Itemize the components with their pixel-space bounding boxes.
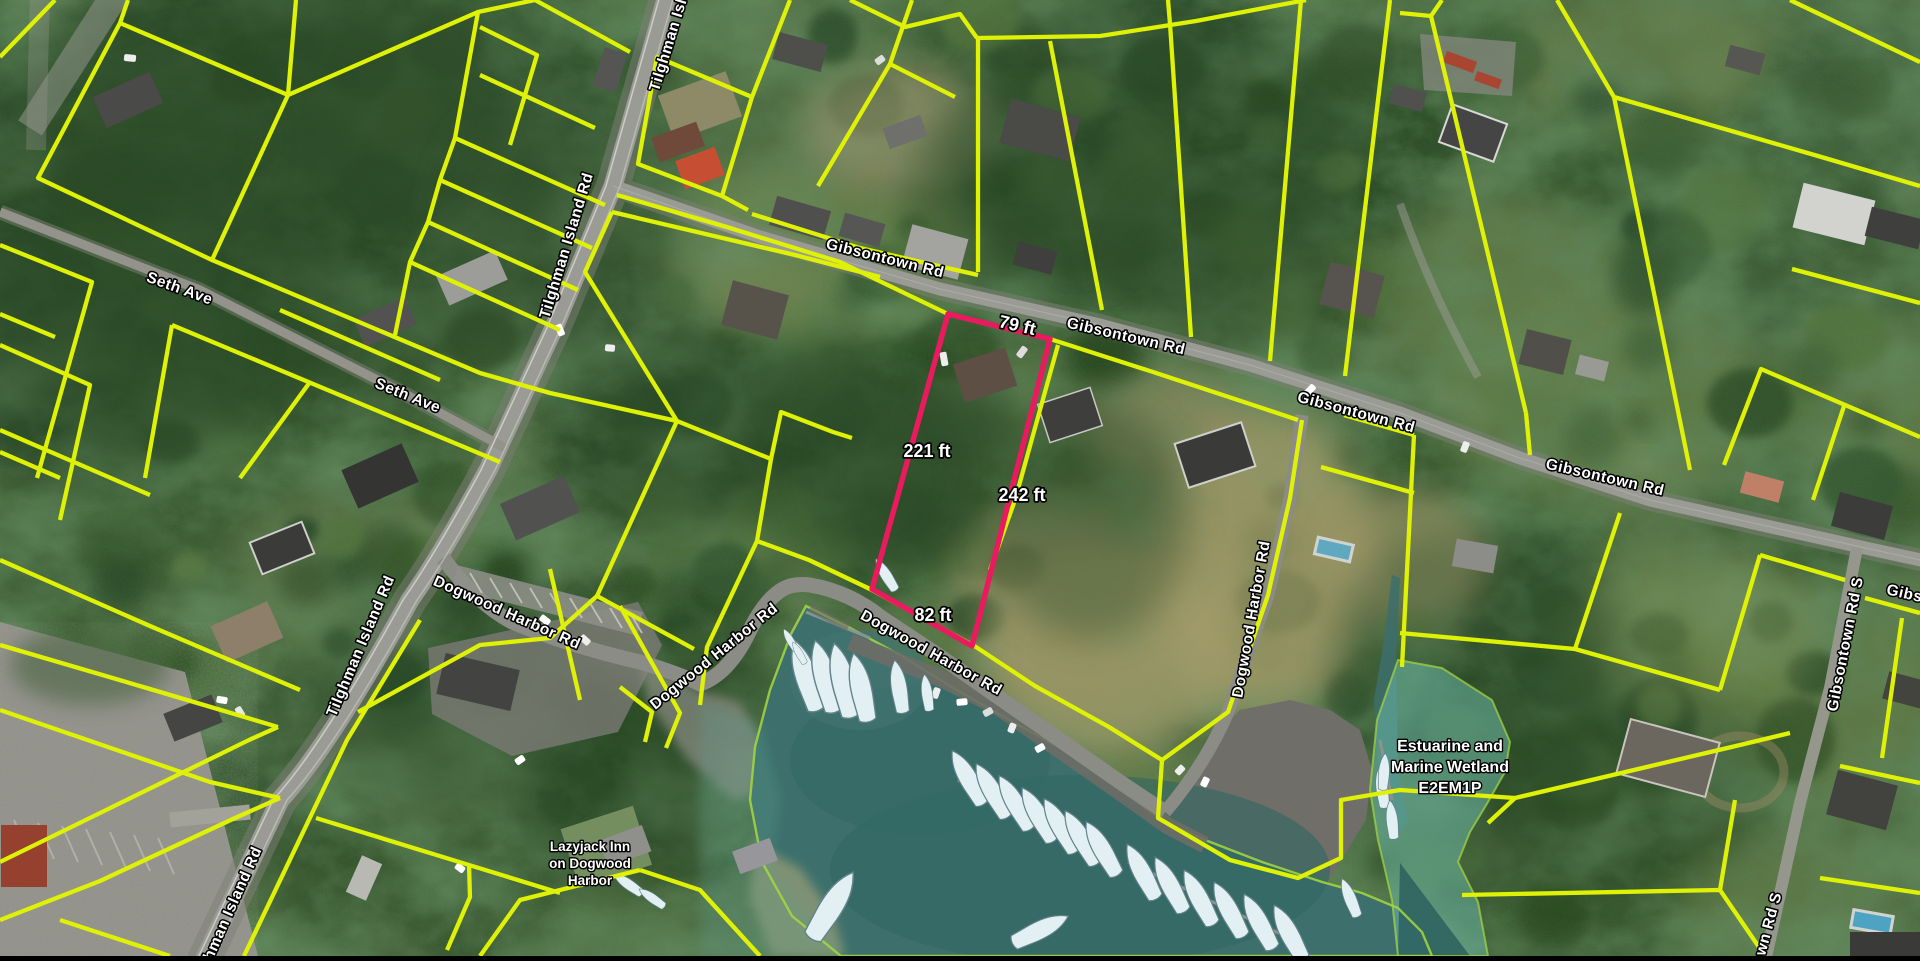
svg-text:Lazyjack Inn: Lazyjack Inn [550,839,630,854]
svg-text:E2EM1P: E2EM1P [1418,780,1481,797]
svg-text:on Dogwood: on Dogwood [549,856,631,871]
svg-text:82 ft: 82 ft [914,605,951,625]
svg-text:Harbor: Harbor [568,873,613,888]
svg-text:242 ft: 242 ft [998,485,1045,505]
svg-text:221 ft: 221 ft [903,441,950,461]
svg-text:Marine Wetland: Marine Wetland [1391,759,1509,776]
svg-text:Estuarine and: Estuarine and [1397,738,1503,755]
